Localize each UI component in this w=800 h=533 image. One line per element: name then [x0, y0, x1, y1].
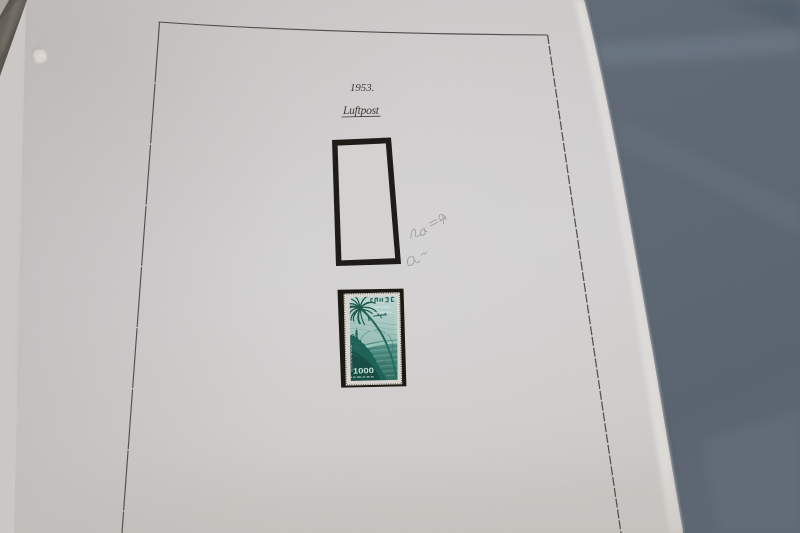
svg-text:1953.: 1953.	[350, 82, 374, 94]
svg-text:1000: 1000	[353, 366, 375, 376]
svg-text:Luftpost: Luftpost	[342, 105, 380, 117]
